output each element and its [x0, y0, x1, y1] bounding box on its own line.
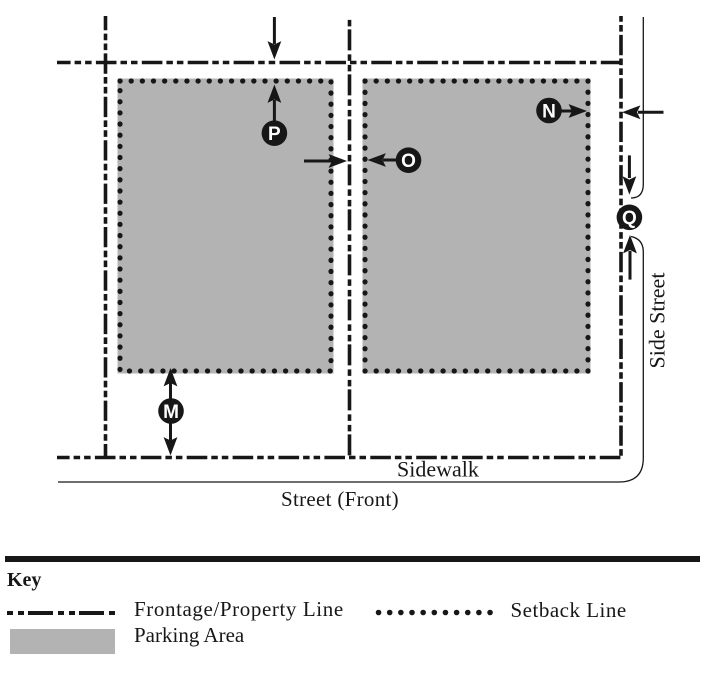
svg-text:Q: Q: [622, 208, 637, 229]
svg-text:Street (Front): Street (Front): [281, 487, 399, 511]
svg-text:Frontage/Property Line: Frontage/Property Line: [134, 597, 344, 621]
svg-text:N: N: [542, 101, 556, 122]
svg-text:Key: Key: [7, 569, 41, 591]
svg-text:P: P: [268, 124, 281, 145]
svg-text:M: M: [163, 402, 179, 423]
svg-text:O: O: [401, 151, 416, 172]
svg-text:Parking Area: Parking Area: [134, 623, 245, 647]
svg-text:Setback Line: Setback Line: [511, 598, 627, 622]
svg-text:Sidewalk: Sidewalk: [397, 457, 479, 482]
svg-text:Side Street: Side Street: [645, 273, 670, 369]
